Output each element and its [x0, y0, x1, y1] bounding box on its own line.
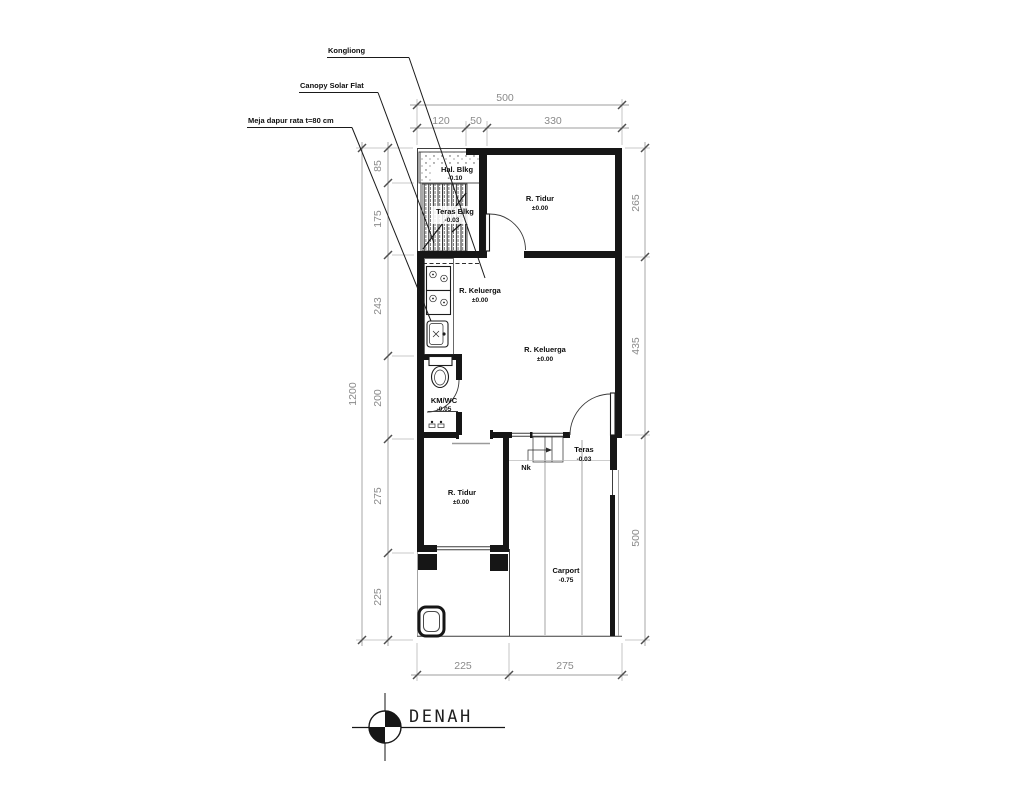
room-label-nk: Nk	[521, 463, 531, 472]
room-level-tidur-atas: ±0.00	[532, 205, 549, 212]
room-label-teras-blkg: Teras Blkg	[436, 207, 474, 216]
dim-left-243: 243	[372, 297, 384, 315]
wall-bedroom2-bottom-b	[490, 545, 509, 552]
wall-bedroom2-right	[503, 438, 509, 549]
dim-left-200: 200	[372, 389, 384, 407]
wall-right	[615, 148, 622, 435]
planter-box	[419, 607, 444, 636]
dim-left-175: 175	[372, 210, 384, 228]
dimension-lines	[362, 105, 645, 675]
drawing-sheet: 500 120 50 330 1200 85 175 243 200 275 2…	[0, 0, 1024, 812]
title-marker-icon	[369, 711, 401, 743]
window-bedroom2	[437, 547, 490, 550]
steps-arrow-head	[546, 448, 552, 453]
dim-left-225: 225	[372, 588, 384, 606]
dim-left-total: 1200	[347, 382, 359, 406]
room-label-carport: Carport	[552, 566, 580, 575]
entry-steps	[509, 437, 610, 462]
wall-mid-a	[417, 432, 458, 438]
wall-teras-right	[610, 435, 617, 470]
floor-plan-svg: 500 120 50 330 1200 85 175 243 200 275 2…	[0, 0, 1024, 812]
dimension-annotations: 500 120 50 330 1200 85 175 243 200 275 2…	[347, 92, 650, 681]
room-label-hal-blkg: Hal. Blkg	[441, 165, 474, 174]
extension-lines	[356, 99, 650, 681]
room-label-teras: Teras	[574, 445, 593, 454]
bathroom-kmwc	[429, 357, 452, 428]
dim-bottom-225: 225	[454, 660, 472, 672]
dim-top-total: 500	[496, 92, 514, 104]
wall-bedroom1-bottom-a	[417, 251, 479, 258]
leader-label-kongliong: Kongliong	[328, 46, 365, 55]
door-main-entry	[570, 393, 615, 435]
dim-bottom-275: 275	[556, 660, 574, 672]
dim-right-265: 265	[630, 194, 642, 212]
dim-top-120: 120	[432, 115, 450, 127]
sink-icon	[427, 321, 448, 347]
kitchen-counter	[425, 259, 454, 355]
title-block: DENAH	[352, 693, 505, 761]
dim-left-275: 275	[372, 487, 384, 505]
door-jamb-1	[456, 430, 459, 439]
room-label-kmwc: KM/WC	[431, 396, 458, 405]
room-level-teras: -0.03	[577, 456, 592, 463]
room-label-keluarga-a: R. Keluerga	[459, 286, 502, 295]
wall-right-lower	[610, 495, 615, 636]
pier-front-left	[418, 554, 437, 570]
room-label-tidur-atas: R. Tidur	[526, 194, 554, 203]
dim-top-50: 50	[470, 115, 482, 127]
wall-kmwc-right-a	[456, 354, 462, 380]
room-level-teras-blkg: -0.03	[445, 217, 460, 224]
leader-label-meja: Meja dapur rata t=80 cm	[248, 116, 334, 125]
door-bedroom1	[486, 214, 526, 251]
wall-top	[466, 148, 622, 155]
dim-right-500: 500	[630, 529, 642, 547]
wall-front-mid	[563, 432, 570, 438]
room-label-keluarga-b: R. Keluerga	[524, 345, 567, 354]
room-label-tidur-bawah: R. Tidur	[448, 488, 476, 497]
wall-bedroom2-bottom-a	[417, 545, 437, 552]
room-level-keluarga-b: ±0.00	[537, 356, 554, 363]
dimension-ticks	[358, 101, 649, 679]
dim-right-435: 435	[630, 337, 642, 355]
dim-left-85: 85	[372, 160, 384, 172]
leader-label-canopy: Canopy Solar Flat	[300, 81, 364, 90]
toilet-icon	[429, 357, 452, 388]
pier-front-right	[490, 554, 508, 571]
drawing-title: DENAH	[409, 707, 473, 727]
room-level-carport: -0.75	[559, 577, 574, 584]
stove-icon	[427, 267, 451, 315]
room-level-tidur-bawah: ±0.00	[453, 499, 470, 506]
floor-drain-icon	[429, 421, 444, 428]
carport-stripes	[545, 440, 582, 635]
wall-mid-b	[492, 432, 510, 438]
wall-bedroom1-bottom-b	[524, 251, 622, 258]
door-jamb-2	[490, 430, 493, 439]
steps-arrow-line	[528, 450, 546, 461]
dim-top-330: 330	[544, 115, 562, 127]
room-level-kmwc: -0.05	[437, 406, 452, 413]
room-level-keluarga-a: ±0.00	[472, 297, 489, 304]
